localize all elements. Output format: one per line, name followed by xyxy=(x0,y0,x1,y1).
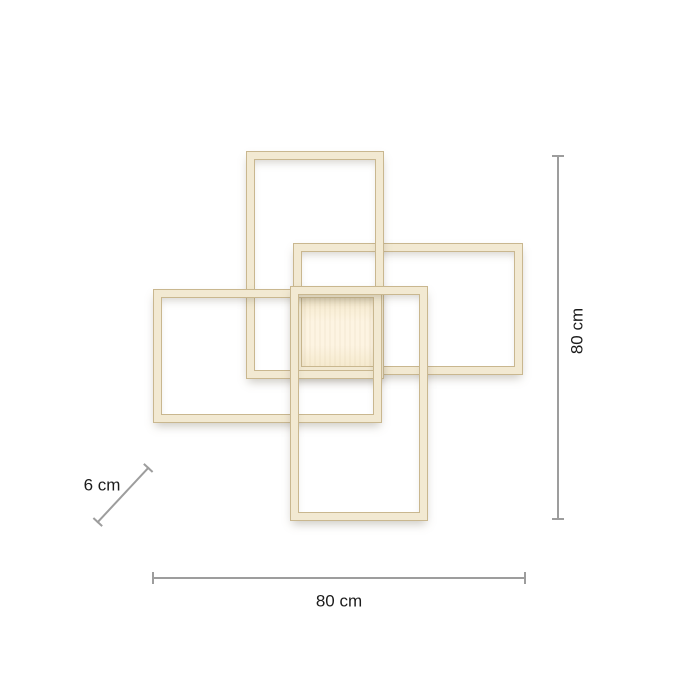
lamp-frame-bottom xyxy=(291,287,427,520)
height-dimension-line xyxy=(557,155,559,520)
product-dimension-diagram: 80 cm 80 cm 6 cm xyxy=(0,0,676,676)
width-dimension-label: 80 cm xyxy=(316,593,362,610)
width-dimension-line xyxy=(152,577,526,579)
depth-dimension-label: 6 cm xyxy=(84,477,121,494)
height-dimension-label: 80 cm xyxy=(569,308,586,354)
